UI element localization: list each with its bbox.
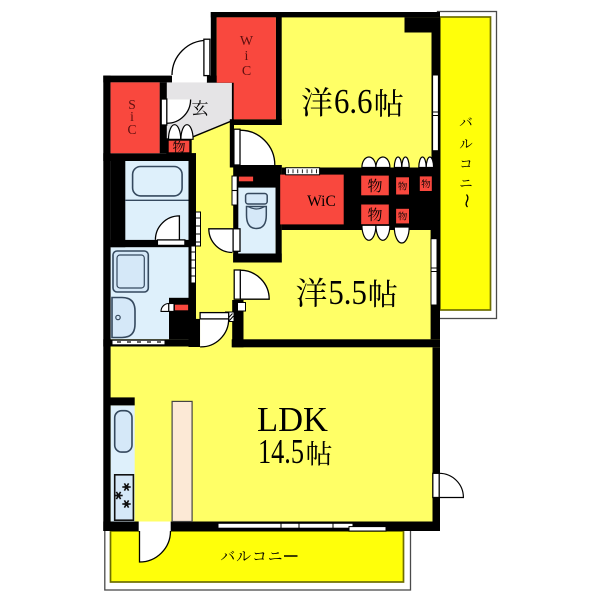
svg-text:C: C (127, 122, 136, 137)
svg-text:14.5: 14.5 (258, 432, 304, 471)
svg-text:6.6: 6.6 (334, 82, 373, 121)
svg-text:i: i (245, 49, 249, 64)
svg-text:W: W (240, 34, 254, 49)
svg-text:WiC: WiC (307, 193, 336, 210)
svg-text:C: C (242, 64, 251, 79)
svg-text:5.5: 5.5 (328, 273, 367, 312)
